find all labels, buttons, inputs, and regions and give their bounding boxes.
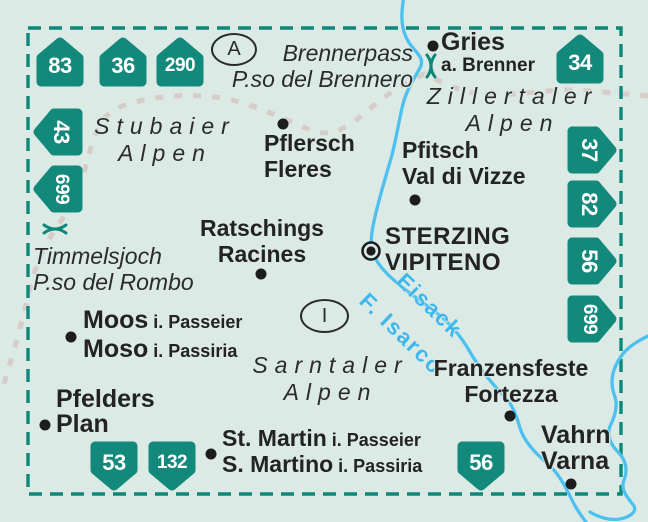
range-label-sarntaler: Sarntaler Alpen: [243, 352, 418, 406]
map-sheet-badge-83[interactable]: 83: [33, 35, 87, 89]
pass-name-de: Brennerpass: [213, 40, 413, 66]
badge-number: 34: [553, 32, 607, 86]
place-label-pflersch: Pflersch Fleres: [264, 130, 355, 182]
place-label-moos: Moosi. Passeier Mosoi. Passiria: [83, 307, 242, 365]
pass-name-de: Timmelsjoch: [33, 243, 194, 269]
badge-number: 699: [34, 162, 88, 216]
town-dot-gries: [428, 41, 439, 52]
badge-number: 36: [96, 35, 150, 89]
badge-number: 699: [562, 292, 616, 346]
map-sheet-badge-699-west[interactable]: 699: [31, 162, 85, 216]
badge-number: 56: [562, 234, 616, 288]
place-label-ratschings: Ratschings Racines: [193, 215, 331, 267]
place-label-pfitsch: Pfitsch Val di Vizze: [402, 137, 526, 189]
range-label-zillertaler: Zillertaler Alpen: [415, 83, 610, 137]
map-sheet-badge-82[interactable]: 82: [565, 177, 619, 231]
map-sheet-badge-290[interactable]: 290: [153, 35, 207, 89]
place-label-pfelders: Pfelders Plan: [56, 387, 155, 437]
town-dot-pfelders: [40, 420, 51, 431]
pass-icon-brenner: [427, 55, 435, 77]
map-sheet-badge-53[interactable]: 53: [87, 439, 141, 493]
map-sheet-badge-36[interactable]: 36: [96, 35, 150, 89]
map-sheet-badge-56-east[interactable]: 56: [565, 234, 619, 288]
place-label-gries: Gries a. Brenner: [441, 29, 535, 76]
map-sheet-badge-34[interactable]: 34: [553, 32, 607, 86]
map-sheet-badge-43[interactable]: 43: [31, 105, 85, 159]
town-dot-st-martin: [206, 449, 217, 460]
badge-number: 132: [145, 439, 199, 493]
town-dot-vahrn: [566, 479, 577, 490]
place-label-sterzing: STERZING VIPITENO: [385, 224, 510, 276]
town-dot-franzensfeste: [505, 411, 516, 422]
pass-label-brenner: Brennerpass P.so del Brennero: [213, 40, 413, 92]
badge-number: 290: [153, 35, 207, 89]
pass-label-timmelsjoch: Timmelsjoch P.so del Rombo: [33, 243, 194, 295]
town-dot-moos: [66, 332, 77, 343]
pass-name-it: P.so del Brennero: [213, 66, 413, 92]
overview-map: 83 36 290 34 43 699 37 82 56 699 53: [0, 0, 648, 522]
place-label-franzensfeste: Franzensfeste Fortezza: [425, 355, 597, 407]
country-marker-italy: I: [300, 299, 349, 333]
city-symbol-sterzing: [363, 243, 380, 260]
country-letter: I: [322, 305, 328, 328]
town-dot-pflersch: [278, 119, 289, 130]
range-label-stubaier: Stubaier Alpen: [85, 113, 245, 167]
pass-icon-timmelsjoch: [44, 225, 66, 233]
town-dot-pfitsch: [410, 195, 421, 206]
badge-number: 53: [87, 439, 141, 493]
badge-number: 82: [562, 177, 616, 231]
place-label-st-martin: St. Martini. Passeier S. Martinoi. Passi…: [222, 426, 422, 478]
town-dot-ratschings: [256, 269, 267, 280]
map-sheet-badge-132[interactable]: 132: [145, 439, 199, 493]
place-label-vahrn: Vahrn Varna: [541, 422, 610, 474]
pass-name-it: P.so del Rombo: [33, 269, 194, 295]
badge-number: 83: [33, 35, 87, 89]
map-sheet-badge-699-east[interactable]: 699: [565, 292, 619, 346]
badge-number: 56: [454, 439, 508, 493]
map-sheet-badge-56-south[interactable]: 56: [454, 439, 508, 493]
badge-number: 43: [34, 105, 88, 159]
